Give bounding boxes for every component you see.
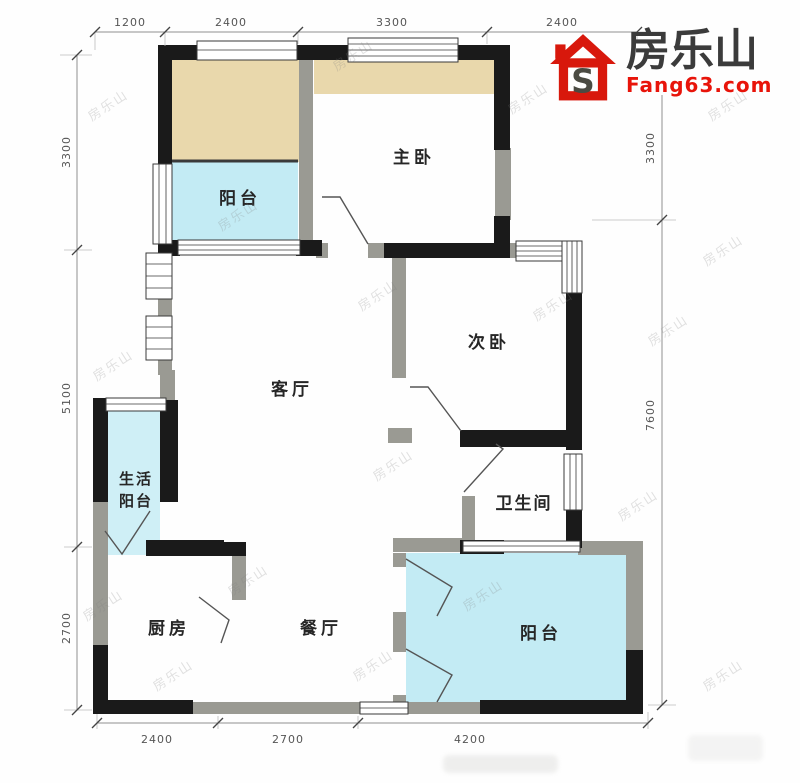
dim-top-1: 1200 [114,16,146,29]
dim-left-3: 2700 [60,612,73,644]
master-bay-fill [314,60,496,94]
dim-top-3: 3300 [376,16,408,29]
room-label-living-room: 客厅 [270,379,313,400]
dim-bottom-1: 2400 [141,733,173,746]
logo-domain-text: Fang63.com [626,75,772,95]
floorplan-page: 阳台 主卧 次卧 客厅 生活 阳台 卫生间 厨房 餐厅 阳台 1200 2400 [0,0,800,783]
room-label-master-bedroom: 主卧 [393,147,435,168]
room-label-second-bedroom: 次卧 [468,332,510,353]
room-label-balcony-top: 阳台 [219,188,261,209]
smudge-mark [688,735,763,761]
bay-room-fill [172,58,300,162]
svg-text:S: S [571,62,595,101]
dim-left-1: 3300 [60,136,73,168]
balcony-bottom-fill [406,553,627,702]
logo-text: 房乐山 Fang63.com [626,28,772,95]
dim-left-2: 5100 [60,382,73,414]
floorplan-svg: 阳台 主卧 次卧 客厅 生活 阳台 卫生间 厨房 餐厅 阳台 1200 2400 [0,0,800,783]
room-label-utility-balcony-2: 阳台 [119,492,153,510]
dimension-bottom: 2400 2700 4200 [92,712,653,746]
dim-bottom-3: 4200 [454,733,486,746]
room-label-dining-room: 餐厅 [300,618,342,639]
room-label-bathroom: 卫生间 [496,493,553,514]
dimension-left: 3300 5100 2700 [60,50,92,715]
dim-top-2: 2400 [215,16,247,29]
dim-right-2: 7600 [644,399,657,431]
site-logo[interactable]: S 房乐山 Fang63.com [546,28,772,104]
dim-bottom-2: 2700 [272,733,304,746]
room-fill-layer [108,58,627,702]
logo-brand-name: 房乐山 [626,28,772,74]
room-label-utility-balcony-1: 生活 [119,470,153,488]
smudge-mark [443,755,558,773]
house-logo-icon: S [546,28,620,104]
dim-right-1: 3300 [644,132,657,164]
room-label-kitchen: 厨房 [148,618,190,639]
room-label-balcony-bottom: 阳台 [520,623,562,644]
